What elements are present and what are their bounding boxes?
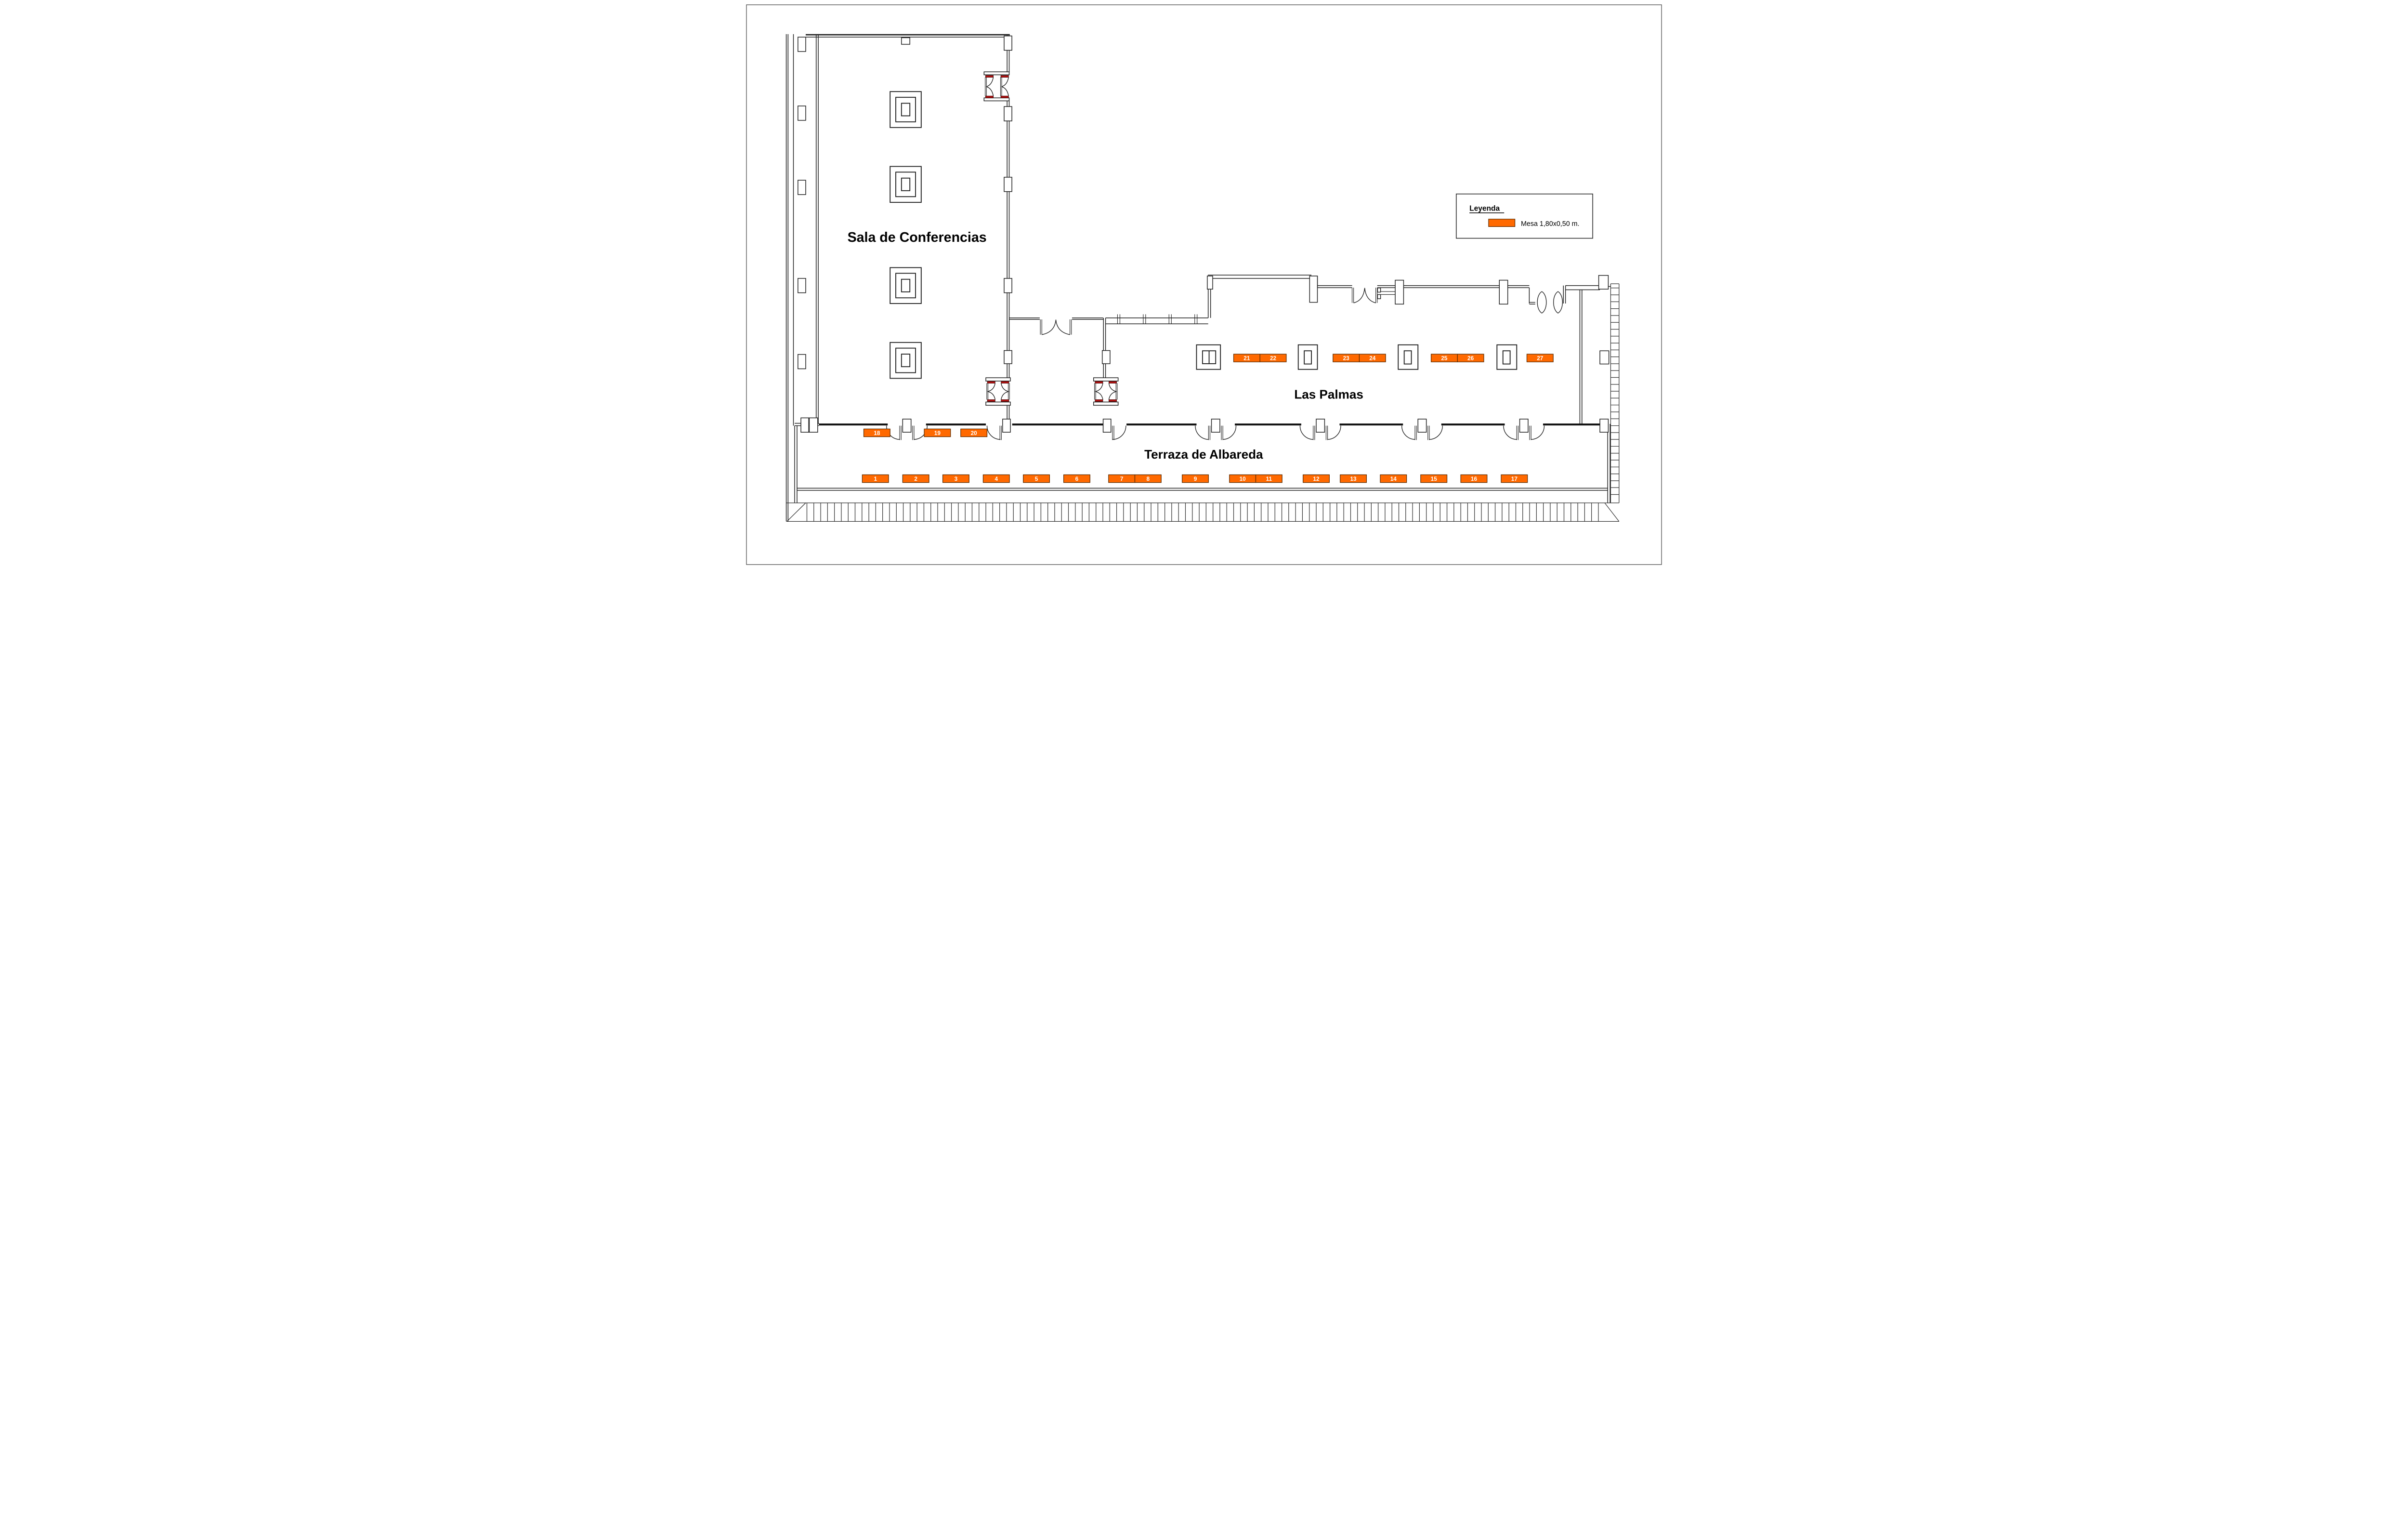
table: 23 (1333, 354, 1360, 362)
table-number: 6 (1075, 475, 1079, 482)
door-post (1316, 419, 1324, 432)
terrace-swing-door (1402, 419, 1443, 440)
legend-table-swatch (1489, 219, 1515, 227)
stairs-hatch-rungs-right (1610, 288, 1619, 495)
terrace-swing-door (1112, 426, 1126, 440)
table-number: 9 (1194, 475, 1197, 482)
stairs-hatch-frame (786, 284, 1619, 521)
column (890, 92, 921, 128)
table-number: 11 (1266, 475, 1272, 482)
table: 17 (1501, 475, 1528, 482)
table: 9 (1182, 475, 1209, 482)
door-post (1377, 294, 1380, 299)
door-leaf (987, 400, 995, 402)
door-jambs (1112, 426, 1114, 440)
palmas-west-wall (1103, 318, 1105, 378)
pilaster (798, 278, 806, 293)
palmas-north-door-swing (1354, 288, 1376, 303)
corridor-door-swing (1042, 320, 1070, 335)
vestibule-cap (1094, 402, 1118, 405)
vestibule-cap (984, 98, 1009, 101)
table: 12 (1303, 475, 1330, 482)
door-post (903, 419, 911, 432)
vestibule-cap (984, 72, 1009, 75)
pilaster (1600, 351, 1609, 364)
table-number: 20 (971, 430, 978, 436)
vestibule-door-swings (1095, 383, 1117, 399)
door-leaf (985, 76, 993, 78)
table-number: 22 (1270, 355, 1277, 361)
door-post (1377, 288, 1380, 292)
pilaster (1004, 278, 1012, 293)
interior-double-doors (1040, 288, 1399, 335)
pilaster (1599, 276, 1609, 290)
corridor-walls (1009, 318, 1103, 319)
table-number: 16 (1471, 475, 1478, 482)
table-number: 12 (1313, 475, 1320, 482)
palmas-east-wall (1580, 290, 1582, 423)
terrace-swing-door (887, 419, 928, 440)
room-label-terrace: Terraza de Albareda (1144, 447, 1263, 462)
table-number: 18 (874, 430, 880, 436)
door-leaf (1109, 400, 1116, 402)
window-mullions (1117, 314, 1197, 324)
table: 20 (961, 429, 987, 436)
table: 18 (864, 429, 890, 436)
door-leaf (985, 96, 993, 98)
stairs-hatch (786, 284, 1619, 521)
pilaster (902, 38, 910, 44)
pilaster (1003, 419, 1010, 432)
table-number: 21 (1243, 355, 1250, 361)
pilaster (801, 418, 809, 432)
legend-box (1456, 194, 1593, 238)
table: 3 (943, 475, 969, 482)
terrace-swing-door (1504, 419, 1544, 440)
column (890, 166, 921, 202)
vestibule-cap (986, 378, 1010, 381)
table: 6 (1064, 475, 1090, 482)
table: 21 (1234, 354, 1260, 362)
door-leaf (1001, 382, 1009, 383)
table-number: 4 (995, 475, 998, 482)
table: 13 (1340, 475, 1367, 482)
outer-west-wall (786, 34, 794, 522)
table-number: 1 (874, 475, 877, 482)
door-swings (987, 426, 1001, 440)
column (1196, 345, 1220, 370)
pilaster (1499, 280, 1507, 304)
stairs-hatch-rungs-bottom (807, 503, 1598, 522)
pilaster (1103, 419, 1111, 432)
floor-plan-canvas: 1234567891011121314151617181920212223242… (742, 0, 1666, 569)
vestibule-jambs (985, 77, 1002, 96)
vestibule-jambs (1095, 383, 1117, 399)
window-mullions-lines (1117, 314, 1197, 324)
vestibules (986, 378, 1118, 405)
vestibule-doors-south (1094, 378, 1118, 405)
table: 16 (1461, 475, 1487, 482)
table: 7 (1109, 475, 1135, 482)
door-leaf (987, 382, 995, 383)
table-number: 15 (1431, 475, 1438, 482)
legend-title: Leyenda (1469, 204, 1500, 212)
curved-door-leaf (1537, 291, 1546, 313)
legend: Leyenda Mesa 1,80x0,50 m. (1456, 194, 1593, 238)
table: 8 (1135, 475, 1161, 482)
table-number: 19 (934, 430, 941, 436)
terrace-walls (795, 423, 1610, 503)
table-number: 8 (1147, 475, 1150, 482)
door-jambs (1000, 426, 1001, 440)
stairs-hatch-diagonal (787, 503, 1619, 522)
table: 24 (1359, 354, 1386, 362)
pilaster (798, 37, 806, 52)
table: 22 (1260, 354, 1286, 362)
table: 10 (1230, 475, 1256, 482)
table-number: 10 (1240, 475, 1246, 482)
vestibule-door-swings (986, 77, 1009, 96)
table: 15 (1421, 475, 1447, 482)
table-number: 27 (1537, 355, 1544, 361)
terrace-swing-door (987, 426, 1002, 440)
column (1497, 345, 1517, 370)
table: 19 (924, 429, 951, 436)
table-number: 5 (1035, 475, 1038, 482)
table: 1 (862, 475, 889, 482)
pilaster (798, 180, 806, 195)
legend-item-label: Mesa 1,80x0,50 m. (1521, 220, 1579, 228)
column (890, 343, 921, 379)
palmas-north-wall (1317, 286, 1610, 304)
vestibule-doors-south (986, 378, 1010, 405)
column (890, 267, 921, 304)
vestibule-jambs (987, 383, 1009, 399)
door-post (1520, 419, 1528, 432)
table: 5 (1023, 475, 1050, 482)
table-number: 2 (914, 475, 917, 482)
table-number: 24 (1369, 355, 1376, 361)
room-label-palmas: Las Palmas (1294, 387, 1363, 402)
pilaster (809, 418, 817, 432)
table: 25 (1431, 354, 1458, 362)
terrace-swing-door (1195, 419, 1236, 440)
pilaster (1102, 351, 1110, 364)
pilaster (1004, 177, 1012, 192)
door-leaf (1001, 96, 1008, 98)
table: 26 (1457, 354, 1484, 362)
pilaster (1395, 280, 1403, 304)
room-label-conference: Sala de Conferencias (848, 230, 987, 245)
door-leaf (1095, 400, 1103, 402)
vestibule-cap (1094, 378, 1118, 381)
door-leaf (1001, 400, 1009, 402)
table: 27 (1527, 354, 1553, 362)
table: 14 (1380, 475, 1407, 482)
door-post (1418, 419, 1426, 432)
table-number: 3 (955, 475, 958, 482)
table-number: 23 (1343, 355, 1350, 361)
pilaster (798, 106, 806, 120)
door-leaves-red (985, 76, 1008, 98)
vestibule-doors-north (984, 72, 1009, 101)
door-leaf (1001, 76, 1008, 78)
curved-entrance-doors (1537, 291, 1562, 313)
palmas-alcove-walls (1208, 275, 1317, 318)
pilaster (1600, 419, 1608, 432)
vestibule-door-swings (987, 383, 1009, 399)
floor-plan-page: 1234567891011121314151617181920212223242… (742, 0, 1666, 569)
table-number: 14 (1390, 475, 1397, 482)
column (1298, 345, 1318, 370)
door-swings (1112, 426, 1126, 440)
pilaster (798, 355, 806, 369)
pilaster (1004, 106, 1012, 121)
tables: 1234567891011121314151617181920212223242… (862, 354, 1553, 483)
vestibule-cap (986, 402, 1010, 405)
door-leaf (1095, 382, 1103, 383)
table-number: 25 (1441, 355, 1448, 361)
door-leaf (1109, 382, 1116, 383)
table-number: 17 (1511, 475, 1518, 482)
table: 4 (983, 475, 1009, 482)
pilaster (1207, 276, 1213, 289)
table: 11 (1256, 475, 1282, 482)
table-number: 7 (1120, 475, 1124, 482)
door-post (1212, 419, 1220, 432)
table: 2 (903, 475, 929, 482)
curved-door-leaf (1554, 291, 1563, 313)
pilaster (1309, 276, 1317, 303)
table-number: 13 (1350, 475, 1357, 482)
terrace-swing-door (1300, 419, 1341, 440)
pilaster (1004, 36, 1012, 51)
column (1398, 345, 1418, 370)
pilaster (1004, 351, 1012, 364)
table-number: 26 (1467, 355, 1474, 361)
palmas-window-wall (1106, 318, 1208, 324)
